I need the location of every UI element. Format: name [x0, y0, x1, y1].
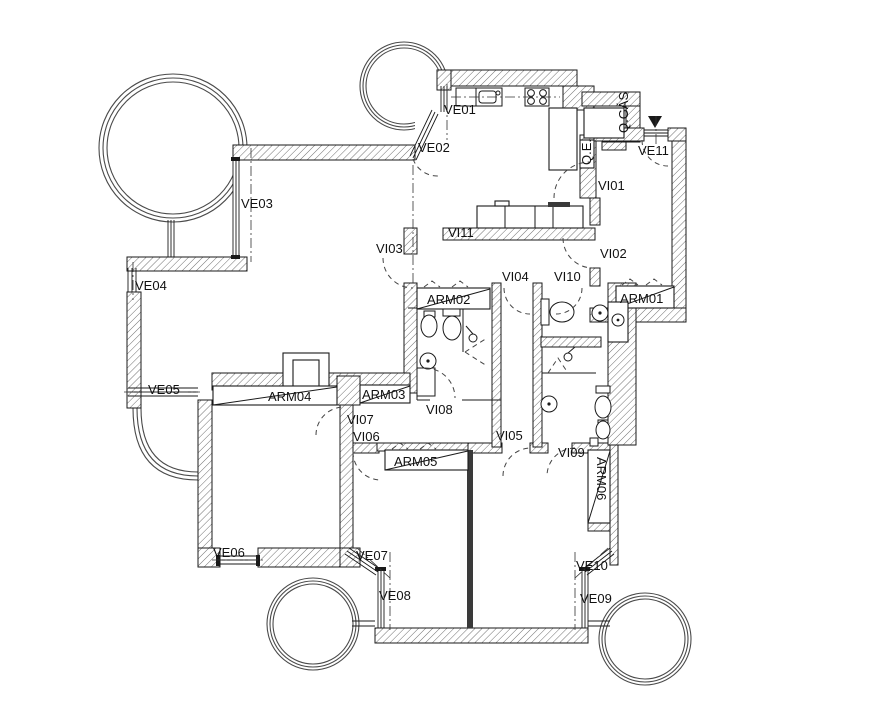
toilet-icon	[443, 316, 461, 340]
label-vi10: VI10	[554, 269, 581, 284]
label-arm02: ARM02	[427, 292, 470, 307]
label-vi09: VI09	[558, 445, 585, 460]
label-ve11: VE11	[638, 143, 669, 158]
label-ve01: VE01	[444, 102, 476, 117]
label-vi02: VI02	[600, 246, 627, 261]
label-vi06: VI06	[353, 429, 380, 444]
label-vi03: VI03	[376, 241, 403, 256]
label-vi11: VI11	[448, 225, 474, 240]
label-ve08: VE08	[379, 588, 411, 603]
label-arm01: ARM01	[620, 291, 663, 306]
label-arm03: ARM03	[362, 387, 405, 402]
label-ve07: VE07	[356, 548, 388, 563]
label-q-e: Q.E.	[579, 139, 594, 165]
bidet-icon	[596, 421, 610, 439]
shower-head-icon	[469, 334, 477, 342]
label-ve03: VE03	[241, 196, 273, 211]
toilet-icon	[595, 396, 611, 418]
label-vi07: VI07	[347, 412, 374, 427]
label-arm06: ARM06	[594, 457, 609, 500]
label-ve05: VE05	[148, 382, 180, 397]
label-q-gas: Q.GÁS	[616, 91, 631, 133]
label-vi04: VI04	[502, 269, 529, 284]
washbasin-icon	[590, 438, 598, 446]
label-arm04: ARM04	[268, 389, 311, 404]
bidet-icon	[421, 315, 437, 337]
label-vi01: VI01	[598, 178, 625, 193]
label-ve10: VE10	[576, 558, 608, 573]
label-ve06: VE06	[213, 545, 245, 560]
label-arm05: ARM05	[394, 454, 437, 469]
floor-plan-canvas: VE01 VE02 VE03 VE04 VE05 VE06 VE07 VE08 …	[0, 0, 883, 720]
label-vi05: VI05	[496, 428, 523, 443]
label-ve04: VE04	[135, 278, 167, 293]
shower-head-icon	[564, 353, 572, 361]
toilet-icon	[550, 302, 574, 322]
label-vi08: VI08	[426, 402, 453, 417]
entry-marker-icon	[648, 116, 662, 128]
floor-plan-page: VE01 VE02 VE03 VE04 VE05 VE06 VE07 VE08 …	[0, 0, 883, 720]
label-ve09: VE09	[580, 591, 612, 606]
label-ve02: VE02	[418, 140, 450, 155]
